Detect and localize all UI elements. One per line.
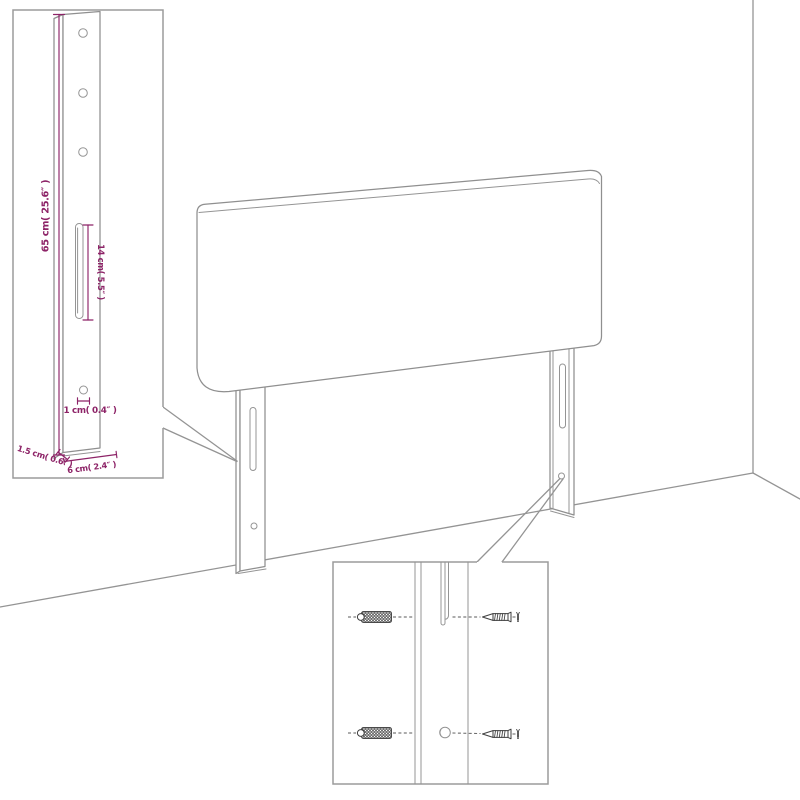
mount-detail-callout [333, 479, 563, 784]
headboard-panel [197, 170, 602, 391]
callout-line-right [502, 479, 563, 562]
leg-front-icon [54, 12, 100, 459]
dim-label-hole: 1 cm( 0.4″ ) [63, 406, 116, 416]
headboard [197, 170, 602, 391]
dim-label-height: 65 cm( 25.6″ ) [41, 180, 52, 253]
callout-line-lower [163, 428, 237, 462]
wall-plug-icon [357, 728, 391, 739]
headboard-left-leg [236, 385, 266, 574]
wall-plug-icon [357, 612, 391, 623]
callout-line-upper [163, 407, 237, 461]
diagram-page: 65 cm( 25.6″ ) 14 cm( 5.5″ ) 1 cm( 0.4″ … [0, 0, 800, 800]
floor-line-right [753, 473, 800, 499]
right-leg-body [550, 345, 574, 515]
left-leg-front-face [240, 385, 265, 572]
dim-label-slot-length: 14 cm( 5.5″ ) [96, 244, 106, 300]
diagram-canvas: 65 cm( 25.6″ ) 14 cm( 5.5″ ) 1 cm( 0.4″ … [0, 0, 800, 800]
